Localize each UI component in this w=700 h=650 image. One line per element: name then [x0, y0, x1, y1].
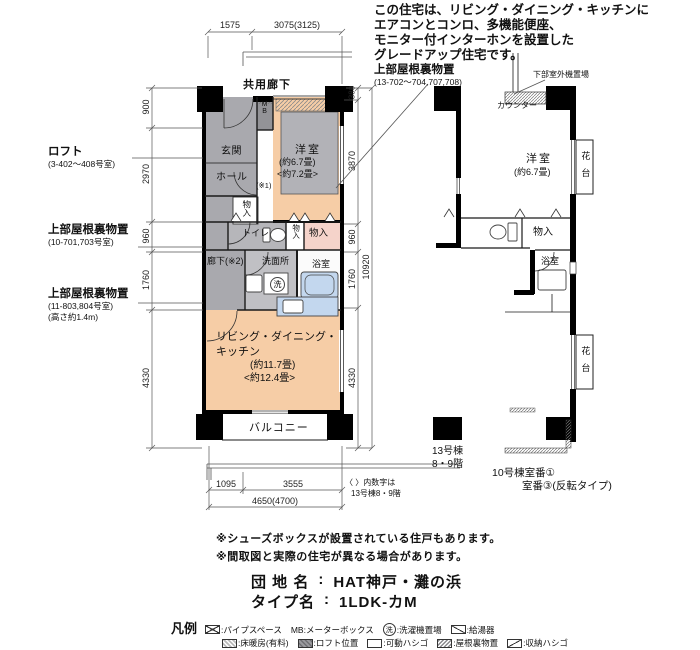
- storage-hall-label: 物入: [241, 200, 251, 217]
- legend-pipe-space: :パイプスペース: [205, 624, 282, 636]
- floor-heating-icon: [222, 639, 237, 648]
- legend-washer-label: :洗濯機置場: [397, 624, 442, 636]
- legend-heading: 凡例: [171, 622, 197, 637]
- dim-right-1: 380: [348, 71, 357, 115]
- common-corridor-label: 共用廊下: [243, 79, 291, 92]
- ldk-size1: (約11.7畳): [250, 360, 295, 372]
- sub-bathroom-label: 浴室: [541, 256, 559, 266]
- flower-stand-1-label: 花台: [580, 151, 590, 185]
- bldg13-label-2: 8・9階: [432, 459, 463, 471]
- washer-symbol: 洗: [270, 277, 285, 292]
- estate-name-label: 団 地 名: [251, 571, 309, 592]
- dim-left-1: 900: [141, 85, 151, 129]
- legend-water-heater-label: :給湯器: [467, 624, 495, 636]
- callout-attic-low-sub: (11-803,804号室): [48, 302, 113, 312]
- washer-icon: 洗: [383, 623, 396, 636]
- entrance-label: 玄関: [221, 146, 242, 158]
- intro-line-4: グレードアップ住宅です。: [374, 48, 523, 62]
- callout-loft-sub: (3-402〜408号室): [48, 160, 115, 170]
- dim-left-2: 2970: [141, 152, 151, 196]
- water-heater-icon: [451, 625, 466, 634]
- estate-name-value: HAT神戸・灘の浜: [333, 571, 462, 592]
- western-room-size2: <約7.2畳>: [277, 169, 318, 179]
- toilet-label: トイレ: [242, 228, 269, 238]
- callout-attic-mid-sub: (10-701,703号室): [48, 238, 114, 248]
- washroom-label: 洗面所: [262, 256, 289, 266]
- callout-counter: カウンター: [497, 101, 537, 110]
- callout-attic-low-sub2: (高さ約1.4m): [48, 313, 98, 323]
- callout-outdoor-unit: 下部室外機置場: [533, 70, 589, 79]
- type-name-separator: :: [324, 591, 330, 612]
- legend-attic-storage-label: :屋根裏物置: [453, 637, 498, 649]
- western-room-size1: (約6.7畳): [279, 157, 316, 167]
- floorplan-page: この住宅は、リビング・ダイニング・キッチンに エアコンとコンロ、多機能便座、 モ…: [0, 0, 700, 650]
- flower-stand-2-label: 花台: [580, 346, 590, 380]
- callout-attic-low: 上部屋根裏物置: [48, 288, 129, 301]
- dim-left-5: 4330: [141, 356, 151, 400]
- callout-attic-mid: 上部屋根裏物置: [48, 224, 129, 237]
- legend-attic-storage: :屋根裏物置: [437, 637, 498, 649]
- sub-toilet-fixture: [508, 223, 517, 241]
- ldk-label-2: キッチン: [216, 346, 260, 359]
- sub-western-room-size: (約6.7畳): [514, 167, 551, 177]
- dim-bottom-1: 1095: [211, 479, 241, 489]
- kitchen-sink: [283, 300, 303, 313]
- movable-ladder-icon: [367, 639, 382, 648]
- bldg10-label-1: 10号棟室番①: [492, 467, 555, 479]
- legend-row-1: :パイプスペース MB:メーターボックス 洗 :洗濯機置場 :給湯器: [205, 623, 494, 636]
- sub-bathtub: [538, 270, 566, 290]
- callout-loft: ロフト: [48, 146, 83, 159]
- legend-movable-ladder: :可動ハシゴ: [367, 637, 428, 649]
- loft-position-icon: [298, 639, 313, 648]
- bracket-note-1: 〈 〉内数字は: [345, 478, 395, 487]
- intro-line-3: モニター付インターホンを設置した: [374, 33, 574, 47]
- legend-water-heater: :給湯器: [451, 624, 495, 636]
- bathroom-label: 浴室: [312, 259, 330, 269]
- vanity-fixture: [246, 275, 262, 292]
- bldg10-label-2: 室番③(反転タイプ): [522, 480, 612, 492]
- note-ref-1: (※1): [256, 182, 271, 191]
- intro-line-2: エアコンとコンロ、多機能便座、: [374, 18, 562, 32]
- legend-meter-box: MB:メーターボックス: [291, 624, 374, 636]
- pipe-space-icon: [205, 625, 220, 634]
- sub-western-room-label: 洋室: [526, 153, 552, 166]
- type-name-value: 1LDK-カM: [339, 591, 418, 612]
- estate-name-row: 団 地 名 : HAT神戸・灘の浜: [251, 571, 462, 592]
- note-2: ※間取図と実際の住宅が異なる場合があります。: [216, 551, 468, 564]
- dim-left-4: 1760: [141, 258, 151, 302]
- legend-storage-ladder: :収納ハシゴ: [507, 637, 568, 649]
- legend-floor-heating: :床暖房(有料): [222, 637, 289, 649]
- estate-name-separator: :: [318, 571, 324, 592]
- dim-top-2: 3075(3125): [262, 20, 332, 30]
- hall-label: ホール: [216, 172, 248, 184]
- dim-top-1: 1575: [215, 20, 245, 30]
- bathtub: [301, 272, 338, 298]
- intro-line-1: この住宅は、リビング・ダイニング・キッチンに: [374, 3, 649, 17]
- ldk-size2: <約12.4畳>: [244, 373, 295, 385]
- legend-floor-heating-label: :床暖房(有料): [238, 637, 289, 649]
- western-room-label: 洋室: [295, 144, 321, 157]
- balcony-label: バルコニー: [249, 422, 309, 435]
- type-name-row: タイプ名 : 1LDK-カM: [251, 591, 418, 612]
- dim-bottom-2: 3555: [263, 479, 323, 489]
- bracket-note-2: 13号棟8・9階: [351, 489, 401, 498]
- dim-right-3: 960: [347, 215, 357, 259]
- dim-right-total: 10920: [361, 245, 371, 289]
- dim-right-5: 4330: [347, 356, 357, 400]
- dim-left-3: 960: [141, 214, 151, 258]
- corridor-label: 廊下(※2): [207, 256, 244, 266]
- storage-right-label: 物入: [309, 229, 328, 240]
- legend-pipe-space-label: :パイプスペース: [221, 624, 282, 636]
- dim-right-2: 3870: [347, 139, 357, 183]
- dim-right-4: 1760: [347, 257, 357, 301]
- meter-box-label: MB: [260, 101, 268, 115]
- legend-loft-position: :ロフト位置: [298, 637, 359, 649]
- note-1: ※シューズボックスが設置されている住戸もあります。: [216, 533, 501, 546]
- storage-mid-label: 物入: [291, 224, 300, 239]
- legend-meter-box-label: MB:メーターボックス: [291, 624, 374, 636]
- storage-ladder-icon: [507, 639, 522, 648]
- sub-storage-label: 物入: [533, 227, 553, 239]
- bldg13-label-1: 13号棟: [432, 446, 463, 458]
- type-name-label: タイプ名: [251, 591, 315, 612]
- dim-bottom-total: 4650(4700): [235, 496, 315, 506]
- legend-loft-position-label: :ロフト位置: [314, 637, 359, 649]
- callout-attic-top: 上部屋根裏物置: [374, 64, 455, 77]
- legend-washer: 洗 :洗濯機置場: [383, 623, 442, 636]
- callout-attic-top-sub: (13-702〜704,707,708): [374, 78, 462, 88]
- legend-movable-ladder-label: :可動ハシゴ: [383, 637, 428, 649]
- legend-row-2: :床暖房(有料) :ロフト位置 :可動ハシゴ :屋根裏物置 :収納ハシゴ: [222, 637, 568, 649]
- ldk-label-1: リビング・ダイニング・: [216, 331, 337, 344]
- attic-storage-icon: [437, 639, 452, 648]
- legend-storage-ladder-label: :収納ハシゴ: [523, 637, 568, 649]
